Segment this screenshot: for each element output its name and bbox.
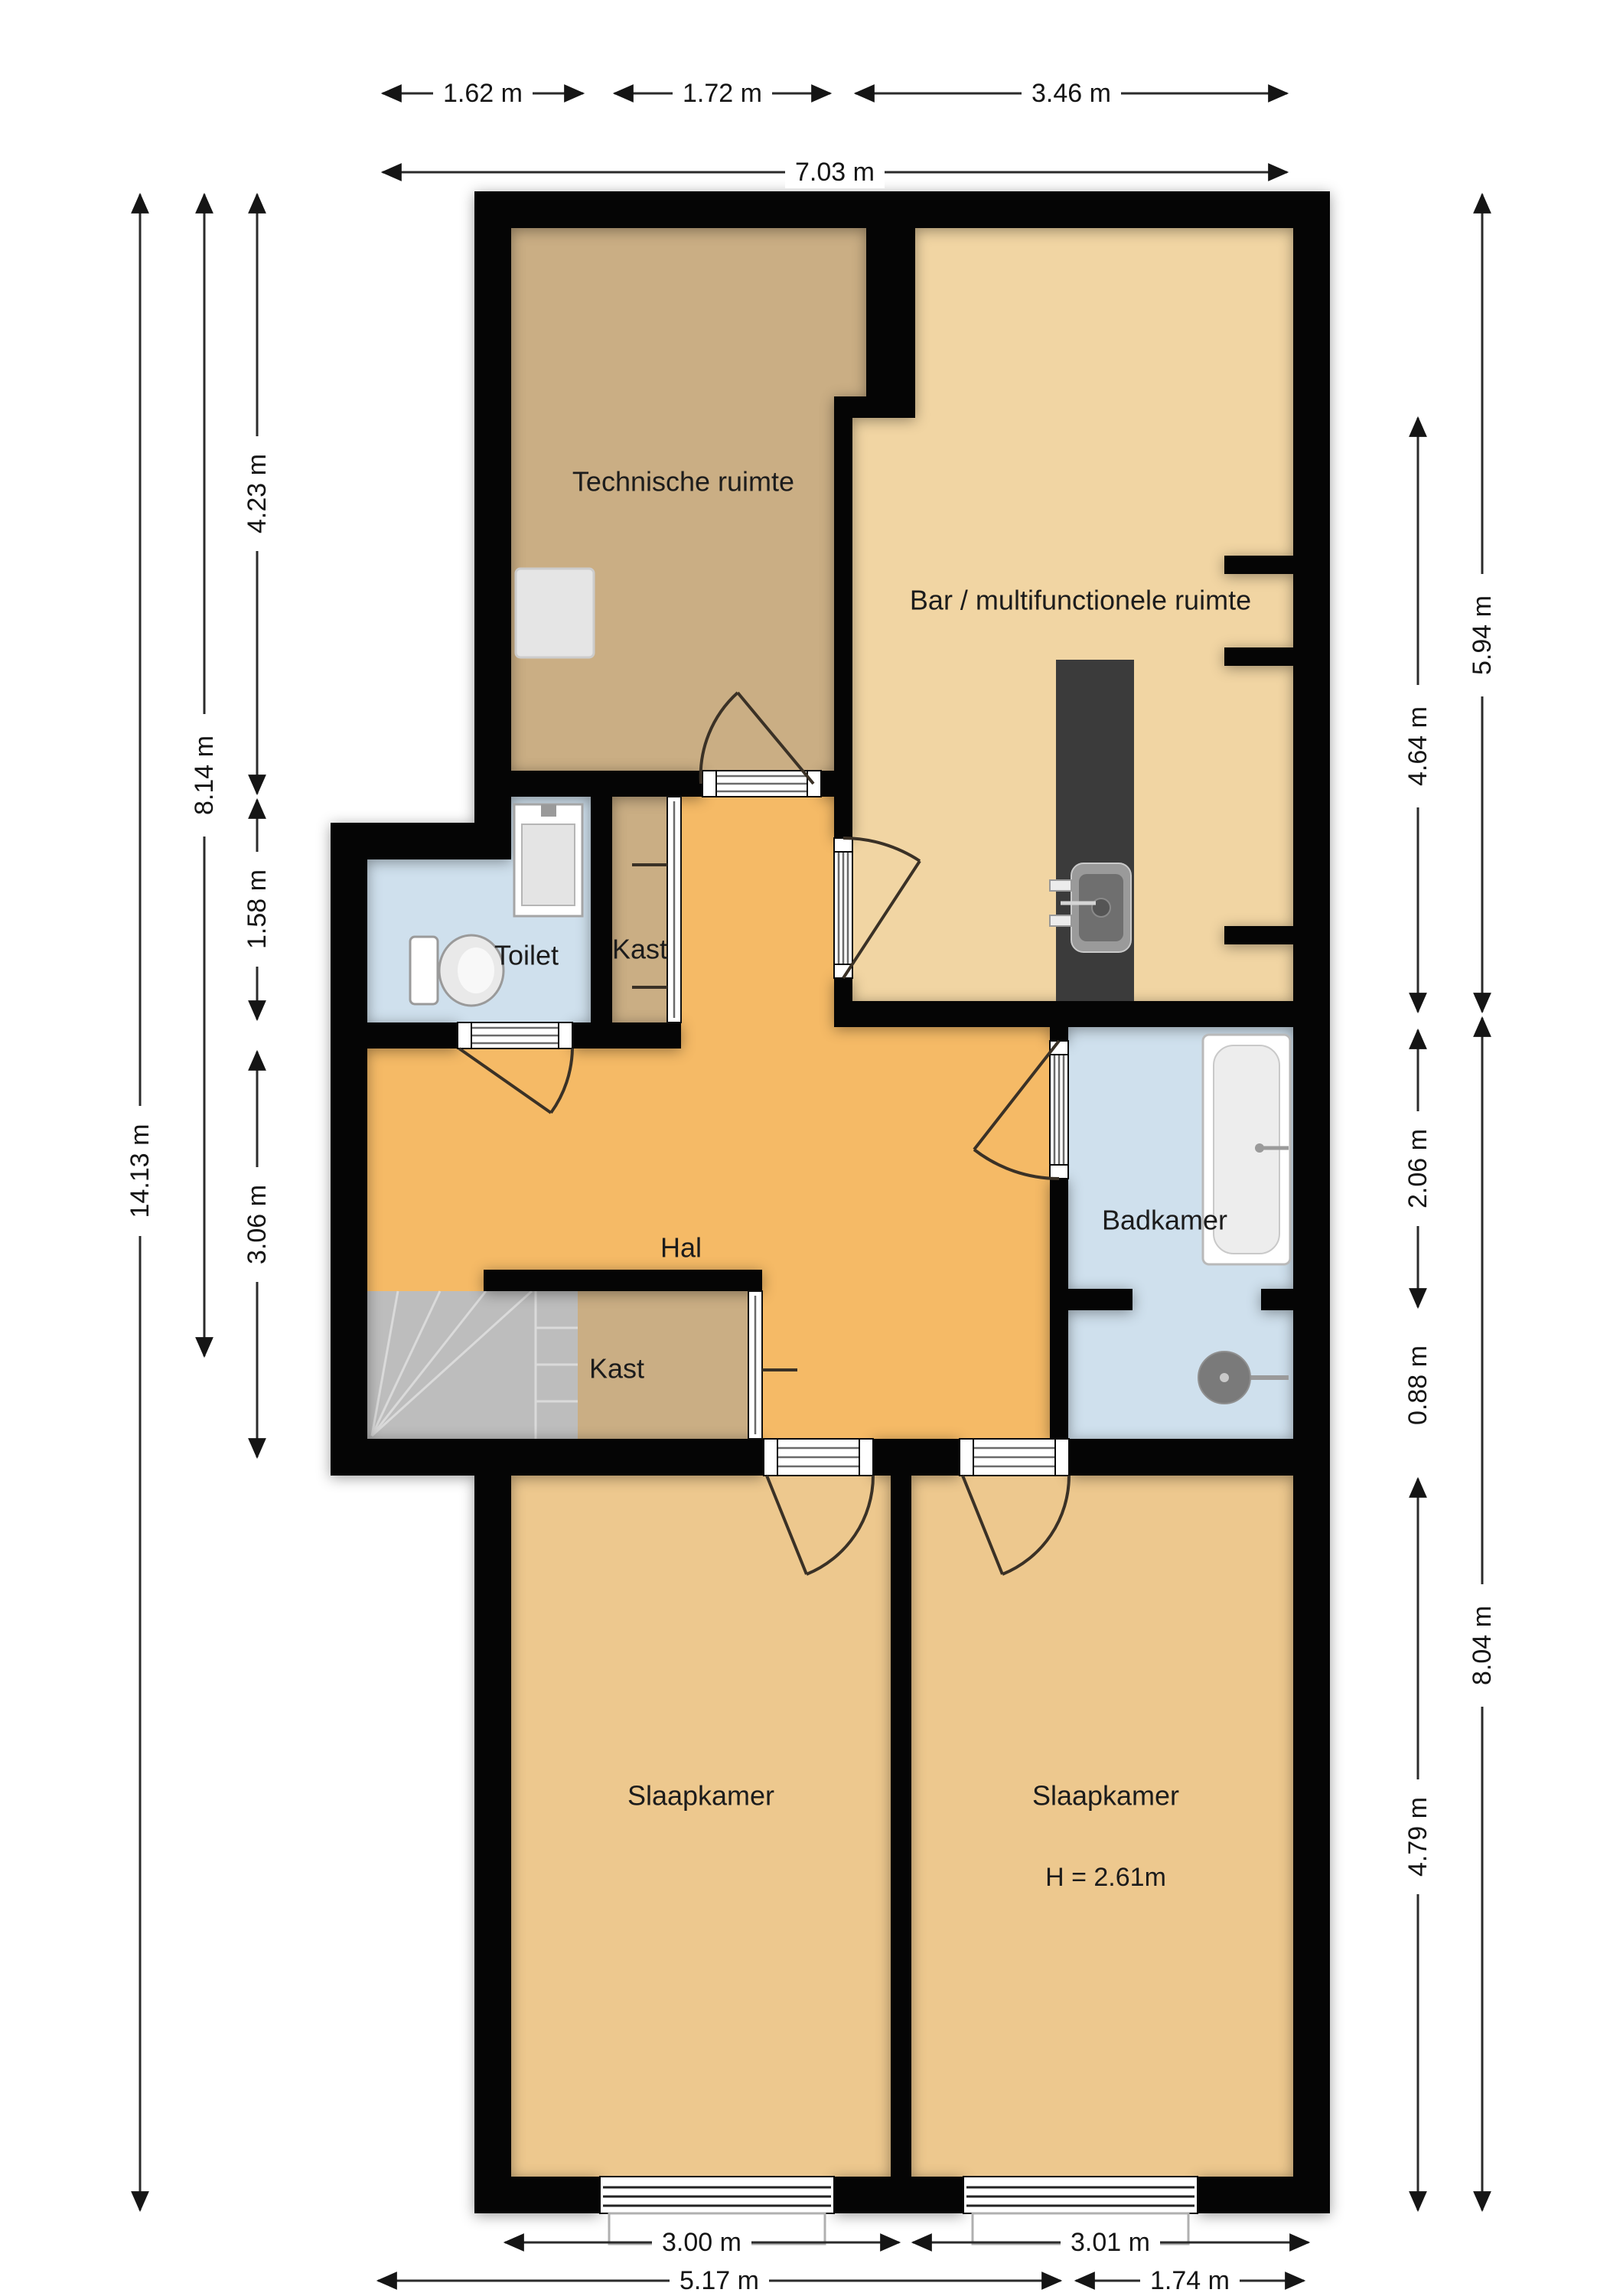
door-jamb: [859, 1439, 873, 1476]
room-slaapkamer-1: [511, 1476, 891, 2177]
dim-label: 8.14 m: [190, 735, 219, 815]
door-badkamer: [1050, 1041, 1068, 1179]
wall-segment: [591, 797, 612, 1022]
dimension-bottom-4: 1.74 m: [1076, 2265, 1304, 2296]
wall-segment: [1050, 1179, 1068, 1439]
dim-label: 3.06 m: [243, 1185, 272, 1264]
bathtub-faucet-knob: [1255, 1143, 1264, 1153]
door-jamb: [1055, 1439, 1069, 1476]
dim-label: 1.62 m: [443, 79, 523, 108]
dimension-right-inner-c: 0.88 m: [1401, 1328, 1435, 1443]
door-jamb: [458, 1022, 471, 1049]
door-jamb: [960, 1439, 973, 1476]
door-jamb: [702, 771, 716, 797]
dim-label: 1.58 m: [243, 869, 272, 949]
dim-label: 3.46 m: [1031, 79, 1111, 108]
wall-segment: [834, 1001, 1293, 1027]
dim-label: 2.06 m: [1403, 1129, 1432, 1208]
dim-label: 1.74 m: [1150, 2266, 1230, 2295]
bar-faucet-handle: [1050, 880, 1071, 891]
toilet-tank: [410, 937, 438, 1004]
dimension-right-inner-d: 4.79 m: [1401, 1479, 1435, 2210]
room-technische-ruimte: [511, 228, 866, 771]
room-label-technische-ruimte: Technische ruimte: [572, 466, 794, 497]
wall-segment: [474, 2177, 600, 2213]
door-jamb: [559, 1022, 572, 1049]
room-label-slaapkamer-1: Slaapkamer: [627, 1780, 774, 1812]
dimension-right-inner-a: 4.64 m: [1401, 418, 1435, 1012]
dimension-left-b: 1.58 m: [240, 800, 274, 1019]
dimension-top-3: 3.46 m: [855, 77, 1287, 109]
door-jamb: [807, 771, 821, 797]
door-toilet: [458, 1022, 572, 1049]
door-jamb: [764, 1439, 777, 1476]
wall-segment: [891, 1476, 911, 2177]
toilet-bowl: [458, 947, 494, 993]
room-label-slaapkamer-2: Slaapkamer: [1032, 1780, 1179, 1812]
door-technische-ruimte: [702, 771, 821, 797]
door-slaapkamer-2: [960, 1439, 1069, 1476]
dimension-bottom-3: 5.17 m: [378, 2265, 1061, 2296]
wall-segment: [866, 191, 915, 396]
wall-segment: [1293, 191, 1330, 2213]
room-label-kast-1: Kast: [612, 934, 667, 965]
dimension-top-1: 1.62 m: [383, 77, 583, 109]
dim-label: 4.79 m: [1403, 1797, 1432, 1877]
wall-segment: [821, 771, 852, 797]
dimension-left-c: 3.06 m: [240, 1052, 274, 1457]
wall-segment: [511, 771, 702, 797]
dimension-bottom-1: 3.00 m: [505, 2226, 899, 2258]
dim-label: 3.01 m: [1071, 2228, 1150, 2257]
wall-segment: [474, 1439, 511, 2177]
wall-segment: [834, 418, 852, 771]
dim-label: 14.13 m: [125, 1124, 155, 1218]
wall-stub-badkamer: [1068, 1289, 1133, 1310]
room-label-toilet: Toilet: [494, 940, 559, 971]
wall-segment: [1069, 1439, 1330, 1476]
room-label-badkamer: Badkamer: [1102, 1205, 1227, 1236]
dimension-right-inner-b: 2.06 m: [1401, 1030, 1435, 1307]
wall-segment: [834, 396, 915, 418]
wall-segment: [474, 228, 511, 823]
wall-niche-stub: [1224, 647, 1293, 666]
washbasin-basin: [522, 824, 575, 905]
dim-label: 5.94 m: [1468, 595, 1497, 675]
washbasin-tap: [541, 804, 556, 817]
room-label-bar: Bar / multifunctionele ruimte: [910, 585, 1251, 616]
dimension-right-outer-top: 5.94 m: [1465, 194, 1499, 1012]
wall-segment: [873, 1439, 960, 1476]
dimension-right-outer-bottom: 8.04 m: [1465, 1018, 1499, 2210]
floorplan-canvas: Technische ruimte Bar / multifunctionele…: [0, 0, 1623, 2296]
wall-segment: [1198, 2177, 1330, 2213]
door-hal-bar: [834, 838, 852, 978]
wall-segment: [484, 1270, 762, 1291]
bar-faucet-handle: [1050, 915, 1071, 926]
dimension-top-total: 7.03 m: [383, 156, 1287, 188]
wall-segment: [331, 823, 511, 859]
door-slaapkamer-1: [764, 1439, 873, 1476]
room-label-hal: Hal: [660, 1232, 702, 1264]
window-frame: [963, 2177, 1198, 2213]
dimension-left-a: 4.23 m: [240, 194, 274, 794]
window-frame: [600, 2177, 834, 2213]
wall-niche-stub: [1224, 926, 1293, 944]
wall-segment: [331, 859, 367, 1476]
dim-label: 3.00 m: [662, 2228, 741, 2257]
wall-stub-badkamer: [1261, 1289, 1293, 1310]
wall-segment: [834, 797, 852, 838]
wall-segment: [572, 1022, 681, 1049]
door-jamb: [834, 838, 852, 852]
floorplan-page: Technische ruimte Bar / multifunctionele…: [0, 0, 1623, 2296]
dim-label: 4.64 m: [1403, 706, 1432, 786]
dim-label: 7.03 m: [795, 158, 875, 187]
dim-label: 4.23 m: [243, 454, 272, 533]
dim-label: 8.04 m: [1468, 1606, 1497, 1685]
room-label-kast-2: Kast: [589, 1353, 644, 1384]
dimension-left-total: 14.13 m: [123, 194, 157, 2210]
bar-counter: [1050, 660, 1134, 1001]
dimension-top-2: 1.72 m: [614, 77, 830, 109]
room-slaapkamer-2: [911, 1476, 1293, 2177]
wall-segment: [1050, 1026, 1068, 1041]
equipment-box-icon: [516, 569, 594, 657]
dim-label: 0.88 m: [1403, 1345, 1432, 1425]
shower-head-center: [1220, 1373, 1229, 1382]
room-height-note: H = 2.61m: [1045, 1863, 1166, 1892]
door-jamb: [1050, 1165, 1068, 1179]
dimension-left-upper: 8.14 m: [187, 194, 221, 1356]
wall-niche-stub: [1224, 556, 1293, 574]
dim-label: 5.17 m: [680, 2266, 759, 2295]
wall-segment: [331, 1439, 764, 1476]
dim-label: 1.72 m: [683, 79, 762, 108]
wall-segment: [834, 2177, 963, 2213]
wall-segment: [367, 1022, 458, 1049]
